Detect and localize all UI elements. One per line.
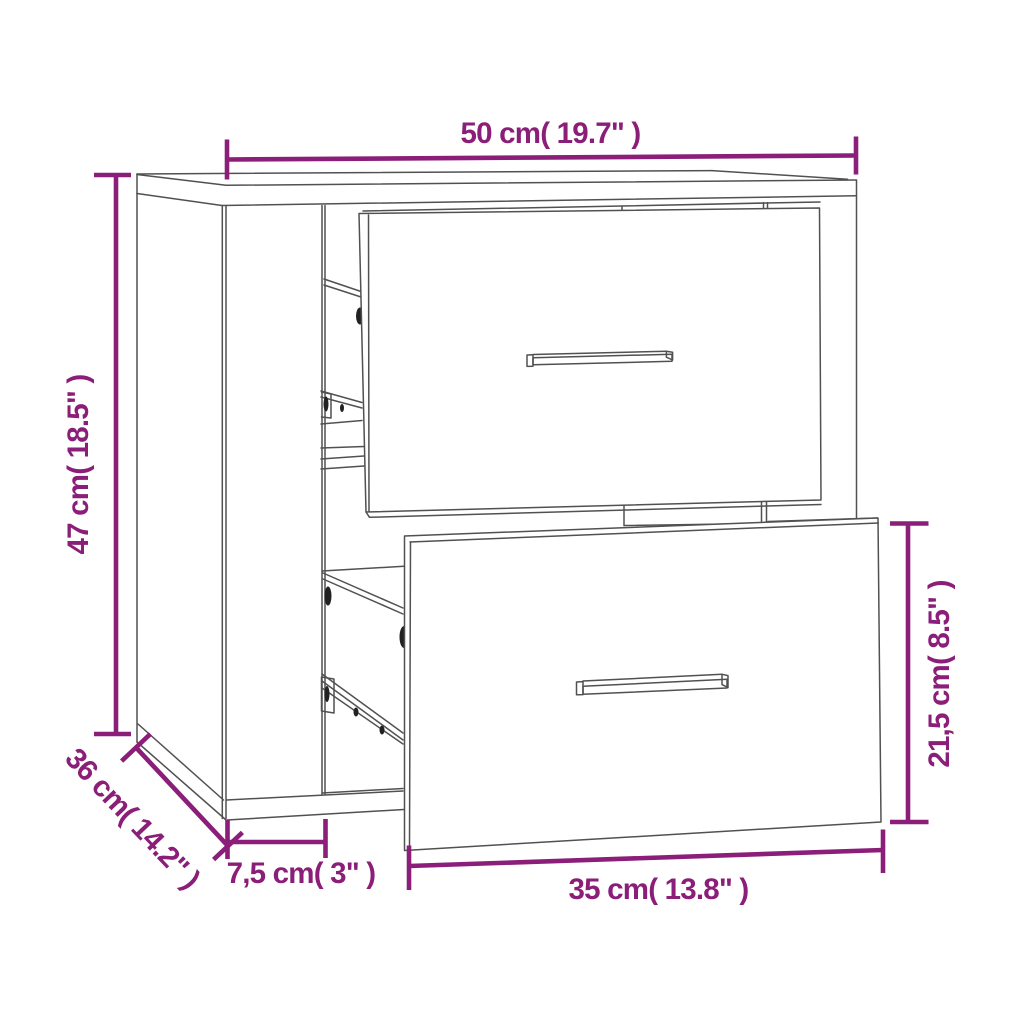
svg-text:35 cm( 13.8" ): 35 cm( 13.8" ) [569,873,749,906]
svg-text:50 cm( 19.7" ): 50 cm( 19.7" ) [461,117,641,150]
svg-text:21,5 cm( 8.5" ): 21,5 cm( 8.5" ) [923,580,956,767]
svg-text:7,5 cm( 3" ): 7,5 cm( 3" ) [227,857,376,890]
svg-text:47 cm( 18.5" ): 47 cm( 18.5" ) [62,375,95,555]
